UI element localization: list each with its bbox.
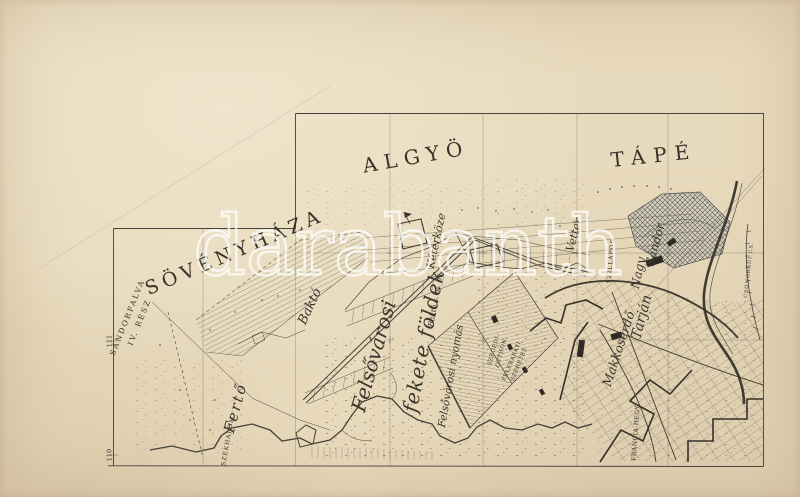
- grid-number-110: 110: [106, 449, 113, 461]
- map-artwork: [0, 0, 800, 497]
- map-photo: SÖVÉNYHÁZA ALGYÖ TÁPÉ SÁNDORFALVA IV. RÉ…: [0, 0, 800, 497]
- grid-number-111: 111: [106, 335, 113, 347]
